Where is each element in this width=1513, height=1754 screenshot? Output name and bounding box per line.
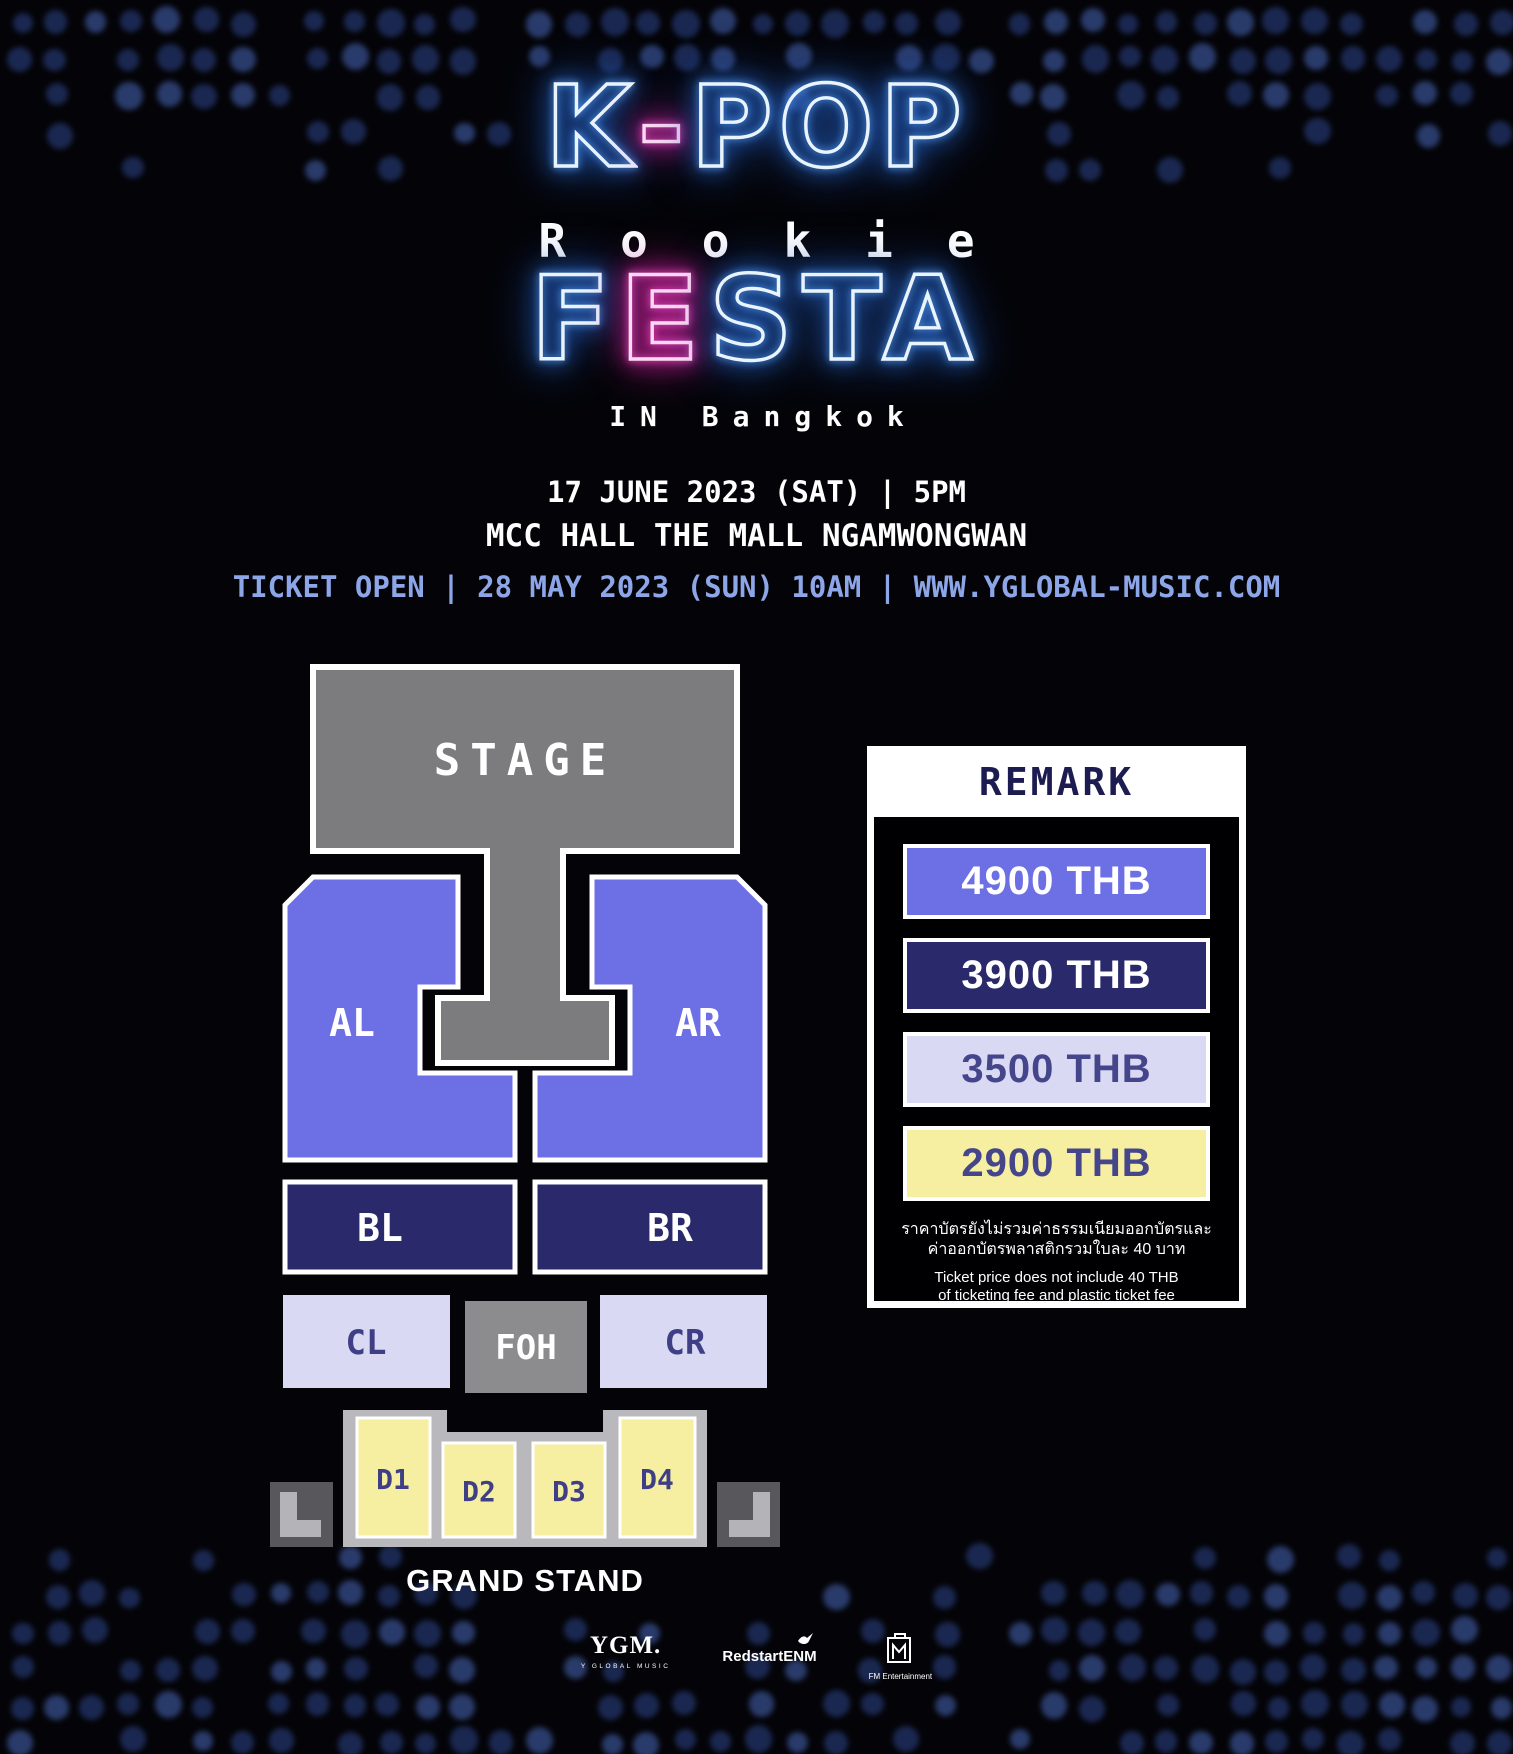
section-ar-label: AR: [675, 1001, 721, 1045]
price-label: 2900 THB: [961, 1141, 1151, 1186]
title-festa-f: F: [531, 262, 620, 378]
section-al-label: AL: [329, 1001, 375, 1045]
ticket-open-line: TICKET OPEN | 28 MAY 2023 (SUN) 10AM | W…: [0, 570, 1513, 604]
title-kpop: K-POP: [0, 72, 1513, 184]
footer-logos: YGM. Y GLOBAL MUSIC RedstartENM FM Enter…: [0, 1632, 1513, 1681]
remark-title: REMARK: [867, 746, 1246, 817]
price-label: 4900 THB: [961, 859, 1151, 904]
ygm-logo-subtext: Y GLOBAL MUSIC: [581, 1663, 671, 1670]
fee-note-english: Ticket price does not include 40 THB of …: [874, 1269, 1239, 1305]
section-d3-label: D3: [552, 1475, 586, 1508]
section-bl-label: BL: [357, 1206, 403, 1250]
stage-label: STAGE: [434, 735, 616, 786]
title-kpop-dash: -: [638, 72, 690, 184]
fee-note-thai-line2: ค่าออกบัตรพลาสติกรวมใบละ 40 บาท: [874, 1240, 1239, 1260]
title-festa-sta: STA: [709, 262, 982, 378]
remark-body: 4900 THB 3900 THB 3500 THB 2900 THB ราคา…: [867, 817, 1246, 1308]
poster: K-POP Rookie FESTA IN Bangkok 17 JUNE 20…: [0, 0, 1513, 1754]
price-tier-2900[interactable]: 2900 THB: [903, 1126, 1210, 1201]
title-festa: FESTA: [0, 262, 1513, 378]
redstart-enm-logo: RedstartENM: [722, 1632, 816, 1665]
event-date: 17 JUNE 2023 (SAT) | 5PM: [0, 475, 1513, 509]
ygm-logo-text: YGM.: [581, 1632, 671, 1660]
section-cl-label: CL: [346, 1323, 387, 1363]
price-label: 3500 THB: [961, 1047, 1151, 1092]
section-br-label: BR: [647, 1206, 693, 1250]
fee-note-thai-line1: ราคาบัตรยังไม่รวมค่าธรรมเนียมออกบัตรและ: [874, 1220, 1239, 1240]
ygm-logo: YGM. Y GLOBAL MUSIC: [581, 1632, 671, 1670]
grand-stand-label: GRAND STAND: [406, 1563, 644, 1598]
price-tier-3500[interactable]: 3500 THB: [903, 1032, 1210, 1107]
fm-entertainment-text: FM Entertainment: [869, 1672, 933, 1681]
fm-entertainment-logo: FM Entertainment: [869, 1632, 933, 1681]
section-d1-label: D1: [376, 1463, 410, 1496]
price-tier-4900[interactable]: 4900 THB: [903, 844, 1210, 919]
bird-icon: [797, 1632, 815, 1647]
left-bracket-icon: [270, 1482, 333, 1547]
title-kpop-k: K: [545, 72, 638, 184]
redstart-enm-text: RedstartENM: [722, 1648, 816, 1665]
title-festa-e: E: [620, 262, 709, 378]
price-label: 3900 THB: [961, 953, 1151, 998]
fee-note-english-line2: of ticketing fee and plastic ticket fee: [874, 1287, 1239, 1305]
section-d4-label: D4: [640, 1463, 674, 1496]
remark-panel: REMARK 4900 THB 3900 THB 3500 THB 2900 T…: [867, 746, 1246, 1308]
right-bracket-icon: [717, 1482, 780, 1547]
fm-box-icon: [886, 1632, 914, 1664]
price-tier-3900[interactable]: 3900 THB: [903, 938, 1210, 1013]
foh-label: FOH: [495, 1328, 556, 1368]
title-kpop-pop: POP: [690, 72, 967, 184]
event-venue: MCC HALL THE MALL NGAMWONGWAN: [0, 518, 1513, 554]
title-location: IN Bangkok: [0, 400, 1513, 433]
fee-note-english-line1: Ticket price does not include 40 THB: [874, 1269, 1239, 1287]
fee-note-thai: ราคาบัตรยังไม่รวมค่าธรรมเนียมออกบัตรและ …: [874, 1220, 1239, 1260]
section-cr-label: CR: [665, 1323, 706, 1363]
section-d2-label: D2: [462, 1475, 496, 1508]
